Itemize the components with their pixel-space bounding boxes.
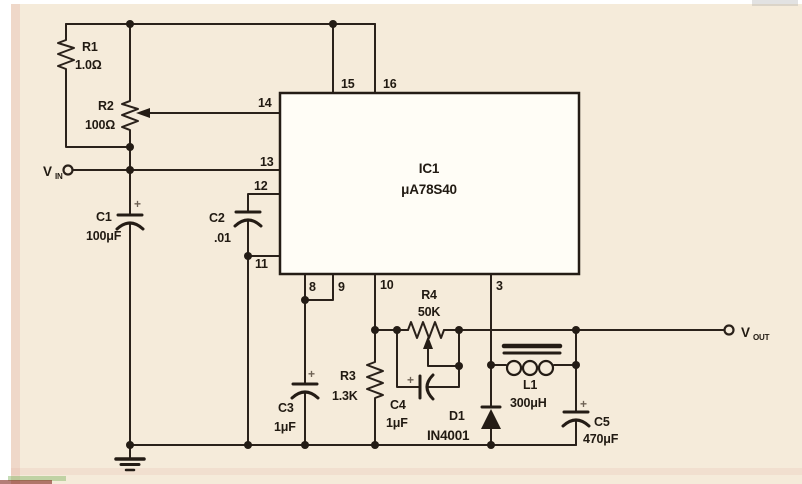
d1-value-label: IN4001 bbox=[427, 428, 470, 443]
pin-8-label: 8 bbox=[309, 280, 316, 294]
r3-ref-label: R3 bbox=[340, 369, 356, 383]
pin-9-label: 9 bbox=[338, 280, 345, 294]
l1-ref-label: L1 bbox=[523, 378, 537, 392]
c1-plus-mark: + bbox=[134, 197, 141, 211]
vin-sub-label: IN bbox=[55, 172, 63, 181]
c2-value-label: .01 bbox=[214, 231, 231, 245]
r3-value-label: 1.3K bbox=[332, 389, 358, 403]
pin-3-label: 3 bbox=[496, 279, 503, 293]
r1-value-label: 1.0Ω bbox=[75, 58, 102, 72]
pin-16-label: 16 bbox=[383, 77, 397, 91]
r2-ref-label: R2 bbox=[98, 99, 114, 113]
scan-edge-left bbox=[11, 4, 20, 484]
c3-plus-mark: + bbox=[308, 367, 315, 381]
pin-10-label: 10 bbox=[380, 278, 394, 292]
c3-ref-label: C3 bbox=[278, 401, 294, 415]
c4-ref-label: C4 bbox=[390, 398, 406, 412]
l1-value-label: 300μH bbox=[510, 396, 547, 410]
vin-terminal bbox=[64, 166, 73, 175]
r4-value-label: 50K bbox=[418, 305, 441, 319]
vout-label: V bbox=[741, 325, 750, 340]
c5-ref-label: C5 bbox=[594, 415, 610, 429]
c5-value-label: 470μF bbox=[583, 432, 619, 446]
c3-value-label: 1μF bbox=[274, 420, 296, 434]
schematic-canvas: R1 1.0Ω R2 100Ω R3 1.3K R4 50K C1 100μF … bbox=[0, 0, 802, 484]
vin-label: V bbox=[43, 164, 52, 179]
d1-ref-label: D1 bbox=[449, 409, 465, 423]
r2-value-label: 100Ω bbox=[85, 118, 115, 132]
pin-12-label: 12 bbox=[254, 179, 268, 193]
r1-ref-label: R1 bbox=[82, 40, 98, 54]
ic-ref-label: IC1 bbox=[419, 161, 440, 176]
c2-ref-label: C2 bbox=[209, 211, 225, 225]
r4-ref-label: R4 bbox=[421, 288, 437, 302]
c4-plus-mark: + bbox=[407, 373, 414, 387]
pin-15-label: 15 bbox=[341, 77, 355, 91]
vout-terminal bbox=[725, 326, 734, 335]
pin-11-label: 11 bbox=[255, 257, 268, 271]
c5-plus-mark: + bbox=[580, 397, 587, 411]
pin-14-label: 14 bbox=[258, 96, 272, 110]
ic-part-label: μA78S40 bbox=[401, 182, 457, 197]
pin-13-label: 13 bbox=[260, 155, 274, 169]
schematic-page: R1 1.0Ω R2 100Ω R3 1.3K R4 50K C1 100μF … bbox=[0, 0, 802, 484]
scan-artifact-gray bbox=[752, 0, 798, 6]
vout-sub-label: OUT bbox=[753, 333, 770, 342]
c4-value-label: 1μF bbox=[386, 416, 408, 430]
scan-artifact-maroon bbox=[0, 480, 52, 484]
c1-value-label: 100μF bbox=[86, 229, 122, 243]
c1-ref-label: C1 bbox=[96, 210, 112, 224]
